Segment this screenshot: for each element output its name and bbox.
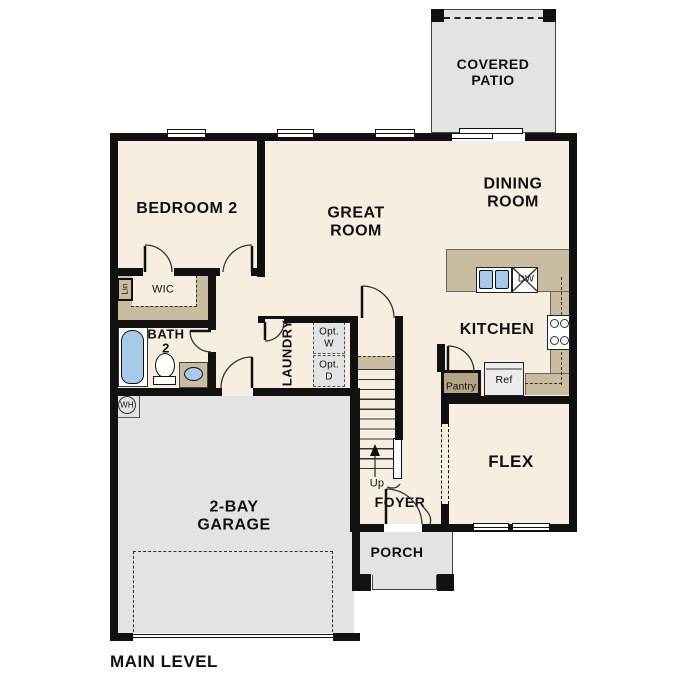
door-opening: [208, 330, 216, 352]
floor-plan: BEDROOM 2 GREAT ROOM DINING ROOM COVERED…: [0, 0, 687, 687]
label-covered-patio: COVERED PATIO: [457, 56, 530, 88]
window: [512, 523, 550, 531]
sink-bowl: [495, 270, 509, 289]
wall-segment: [257, 133, 265, 277]
bath-sink: [184, 367, 203, 381]
label-foyer: FOYER: [375, 494, 426, 510]
window: [277, 129, 314, 138]
window: [375, 129, 415, 138]
stair-railing: [393, 438, 402, 479]
wall-segment: [437, 344, 445, 372]
label-bedroom-2: BEDROOM 2: [136, 200, 237, 218]
label-dishwasher: DW: [517, 275, 535, 286]
porch-post: [437, 574, 454, 591]
sliding-door-panel: [451, 133, 493, 139]
stair-landing: [358, 356, 395, 369]
wall-segment: [441, 504, 449, 524]
garage-door-dashed-zone: [133, 551, 333, 637]
stove-burner: [560, 319, 569, 328]
door-opening: [220, 268, 251, 276]
wall-segment: [569, 133, 577, 532]
label-laundry: LAUNDRY: [281, 320, 296, 387]
wall-segment: [395, 316, 403, 440]
bathtub: [121, 330, 144, 384]
wall-segment: [441, 404, 449, 424]
label-dining-room: DINING ROOM: [484, 176, 543, 213]
patio-post: [543, 9, 556, 22]
toilet-tank: [153, 376, 176, 385]
label-garage: 2-BAY GARAGE: [197, 499, 270, 536]
door-opening: [222, 388, 253, 396]
window: [167, 129, 206, 138]
page-title: MAIN LEVEL: [110, 652, 218, 672]
patio-roof-dashed-line: [444, 17, 544, 20]
stove-burner: [550, 336, 559, 345]
wall-segment: [441, 396, 577, 404]
kitchen-optional-dashed-h: [525, 383, 562, 385]
label-porch: PORCH: [370, 544, 423, 560]
wall-segment: [350, 316, 358, 524]
window: [473, 523, 509, 531]
label-up: Up: [370, 478, 384, 491]
label-kitchen: KITCHEN: [460, 321, 535, 339]
sink-bowl: [479, 270, 493, 289]
label-water-heater: WH: [120, 400, 134, 409]
porch-step: [372, 575, 437, 590]
garage-door: [133, 634, 333, 638]
label-refrigerator: Ref: [496, 374, 513, 386]
toilet-bowl: [155, 353, 175, 378]
stairs: [358, 369, 395, 478]
label-pantry: Pantry: [446, 381, 476, 393]
label-bath-2: BATH 2: [147, 328, 184, 357]
wall-segment: [110, 133, 118, 641]
label-opt-washer: Opt. W: [319, 327, 339, 350]
label-great-room: GREAT ROOM: [327, 205, 384, 242]
label-wic: WIC: [152, 284, 174, 297]
stove-burner: [560, 336, 569, 345]
door-opening: [143, 268, 174, 276]
label-flex: FLEX: [488, 452, 533, 472]
front-door-opening: [384, 524, 422, 532]
patio-post: [431, 9, 444, 22]
stove-burner: [550, 319, 559, 328]
label-linen: Lin: [120, 283, 129, 294]
flex-optional-opening: [441, 424, 449, 504]
label-opt-dryer: Opt. D: [319, 360, 339, 383]
porch-post: [352, 574, 371, 591]
